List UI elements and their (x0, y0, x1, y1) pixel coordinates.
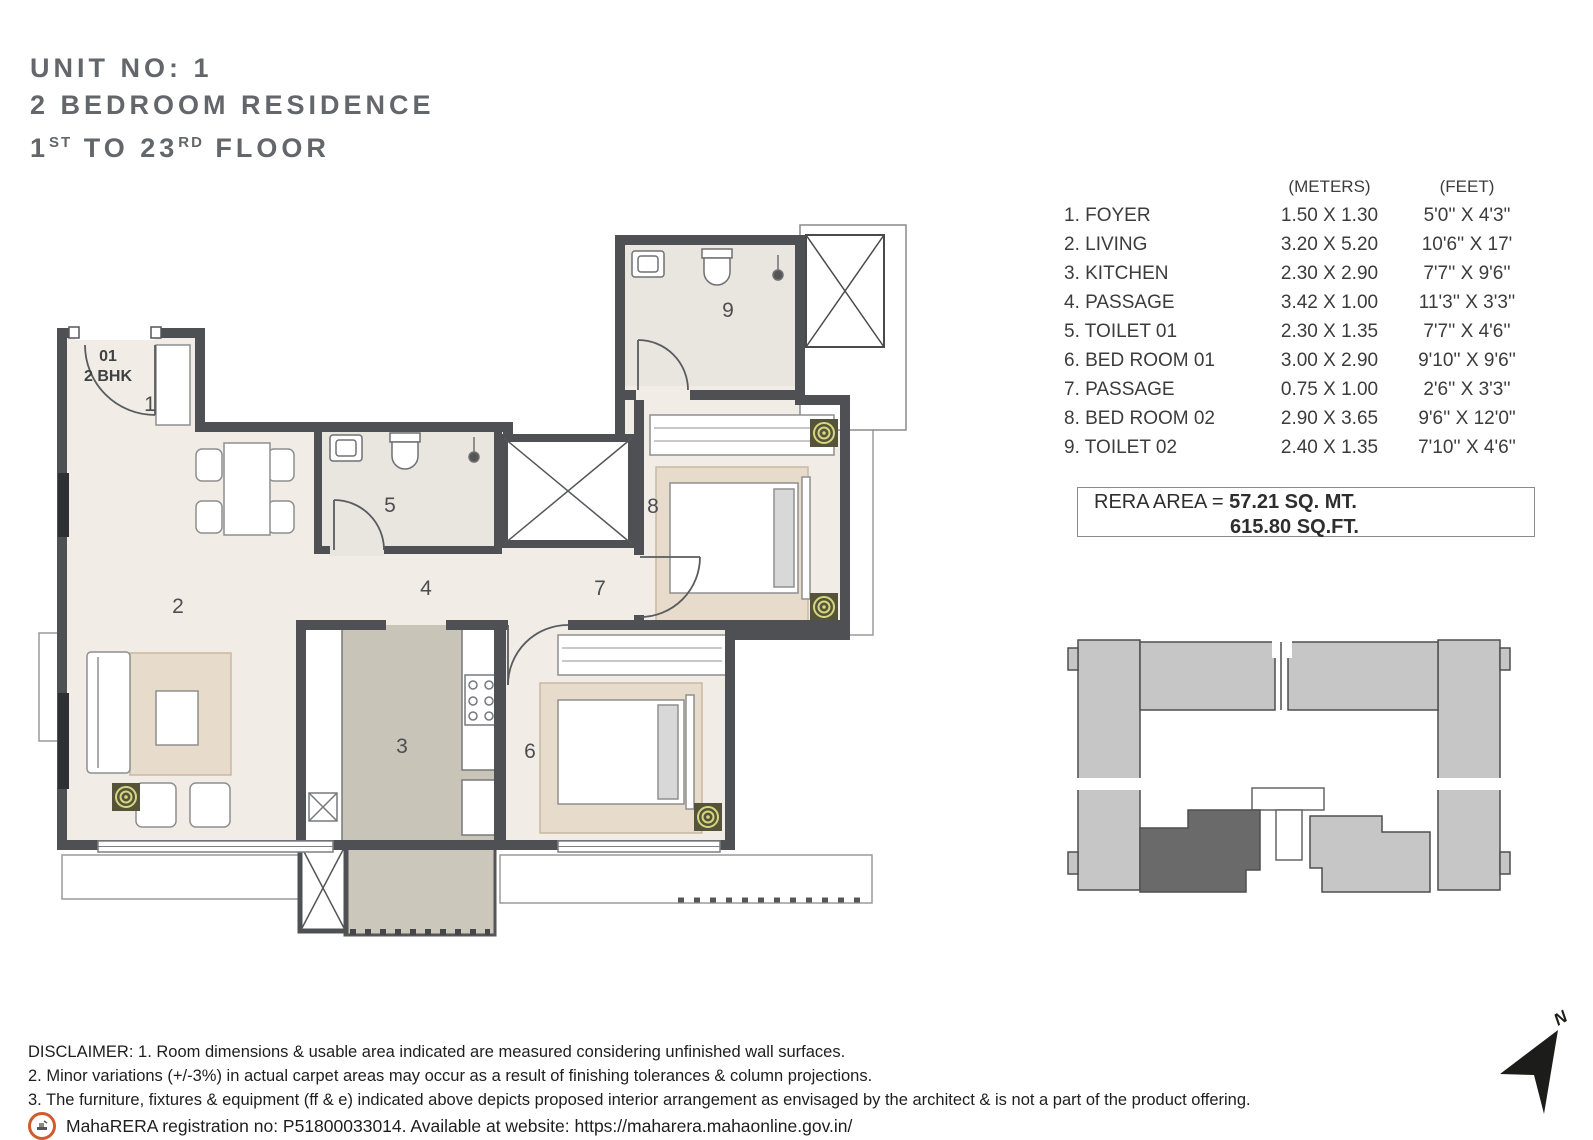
table-row: 9. TOILET 022.40 X 1.357'10'' X 4'6'' (1062, 433, 1532, 462)
entry-opening (75, 326, 155, 340)
keyplan-core-stem (1276, 810, 1302, 860)
room-label-toilet02: 9 (722, 299, 734, 322)
armchair (190, 783, 230, 827)
keyplan-highlighted-unit (1140, 810, 1260, 892)
wc-bowl (704, 258, 730, 285)
headboard (686, 695, 694, 809)
room-label-toilet01: 5 (384, 494, 396, 517)
burner (469, 681, 477, 689)
door-frame (151, 327, 161, 338)
shower-head (773, 270, 783, 280)
burner (485, 712, 493, 720)
wall (494, 620, 506, 845)
armchair (136, 783, 176, 827)
table-row: 7. PASSAGE0.75 X 1.002'6'' X 3'3'' (1062, 375, 1532, 404)
disclaimer-block: DISCLAIMER: 1. Room dimensions & usable … (28, 1040, 1428, 1112)
pillow (658, 705, 678, 799)
wardrobe-bedroom01 (558, 635, 726, 675)
table-row: 5. TOILET 012.30 X 1.357'7'' X 4'6'' (1062, 317, 1532, 346)
sofa (87, 652, 130, 773)
north-arrow-label: N (1551, 1008, 1572, 1029)
residence-type: 2 BEDROOM RESIDENCE (30, 87, 435, 124)
table-row: 1. FOYER1.50 X 1.305'0'' X 4'3" (1062, 201, 1532, 230)
maharera-registration-text: MahaRERA registration no: P51800033014. … (66, 1116, 852, 1137)
unit-number: UNIT NO: 1 (30, 50, 435, 87)
wall (568, 620, 845, 630)
rera-area-sqmt: 57.21 SQ. MT. (1229, 491, 1357, 513)
burner (485, 697, 493, 705)
keyplan-left-notch (1076, 778, 1142, 790)
door-frame (69, 327, 79, 338)
dimensions-table: (METERS) (FEET) 1. FOYER1.50 X 1.305'0''… (1062, 172, 1532, 462)
wc-tank (702, 249, 732, 258)
keyplan-top-left-block (1140, 642, 1275, 710)
wardrobe-bedroom02 (650, 415, 834, 455)
north-arrow: N (1492, 1008, 1582, 1123)
wall (296, 620, 306, 845)
disclaimer-line-2: 2. Minor variations (+/-3%) in actual ca… (28, 1064, 1428, 1088)
dry-balcony-floor (345, 845, 495, 935)
ledge-bottom-bedroom (500, 855, 872, 903)
col-header-feet: (FEET) (1402, 177, 1532, 197)
wall (296, 620, 386, 630)
unit-tag-line2: 2 BHK (84, 368, 132, 385)
north-arrow-shape (1500, 1030, 1558, 1114)
keyplan-core-bar (1252, 788, 1324, 810)
toilet01-opening (330, 544, 384, 556)
room-label-foyer: 1 (144, 393, 156, 416)
headboard (802, 477, 810, 599)
dining-table (224, 443, 270, 535)
disclaimer-line-1: DISCLAIMER: 1. Room dimensions & usable … (28, 1040, 1428, 1064)
wall (634, 400, 644, 555)
keyplan-bottom-right-cluster (1310, 816, 1430, 892)
rera-area-label: RERA AREA = (1094, 491, 1229, 513)
floor-plan-drawing: 1 2 3 4 5 6 7 8 9 01 2 BHK (38, 205, 918, 950)
disclaimer-line-3: 3. The furniture, fixtures & equipment (… (28, 1088, 1428, 1112)
burner (485, 681, 493, 689)
wc-bowl (392, 442, 418, 469)
wc-tank (390, 433, 420, 442)
keyplan-top-notch (1272, 636, 1292, 658)
table-row: 3. KITCHEN2.30 X 2.907'7'' X 9'6'' (1062, 259, 1532, 288)
room-label-bedroom01: 6 (524, 740, 536, 763)
coffee-table (156, 691, 198, 745)
floor-plan: 1 2 3 4 5 6 7 8 9 01 2 BHK (38, 205, 918, 950)
col-header-meters: (METERS) (1257, 177, 1402, 197)
dining-chair (268, 449, 294, 481)
dining-chair (196, 449, 222, 481)
keyplan-top-right-block (1288, 642, 1438, 710)
table-row: 2. LIVING3.20 X 5.2010'6'' X 17' (1062, 230, 1532, 259)
room-label-passage2: 7 (594, 577, 606, 600)
dining-chair (268, 501, 294, 533)
rera-area-box: RERA AREA = 57.21 SQ. MT. 615.80 SQ.FT. (1077, 487, 1535, 537)
wall (620, 390, 636, 400)
room-label-living: 2 (172, 595, 184, 618)
burner (469, 712, 477, 720)
dining-chair (196, 501, 222, 533)
burner (469, 697, 477, 705)
title-block: UNIT NO: 1 2 BEDROOM RESIDENCE 1ST TO 23… (30, 50, 435, 167)
keyplan-left-wing (1078, 640, 1140, 890)
keyplan-right-wing (1438, 640, 1500, 890)
key-plan-drawing (1060, 630, 1515, 905)
floor-range: 1ST TO 23RD FLOOR (30, 124, 435, 167)
foyer-niche (156, 345, 190, 425)
rera-area-sqft: 615.80 SQ.FT. (1230, 515, 1534, 540)
table-row: 4. PASSAGE3.42 X 1.0011'3'' X 3'3'' (1062, 288, 1532, 317)
room-label-bedroom02: 8 (647, 495, 659, 518)
unit-tag-line1: 01 (99, 348, 117, 365)
room-label-kitchen: 3 (396, 735, 408, 758)
room-label-passage: 4 (420, 577, 432, 600)
table-row: 8. BED ROOM 022.90 X 3.659'6'' X 12'0" (1062, 404, 1532, 433)
shower-head (469, 452, 479, 462)
keyplan-right-notch (1434, 778, 1502, 790)
maharera-registration: MahaRERA registration no: P51800033014. … (28, 1112, 852, 1140)
key-plan (1060, 630, 1515, 905)
pillow (774, 489, 794, 587)
table-row: 6. BED ROOM 013.00 X 2.909'10'' X 9'6'' (1062, 346, 1532, 375)
table-header: (METERS) (FEET) (1062, 172, 1532, 201)
wall (690, 390, 800, 400)
maharera-logo-icon (28, 1112, 56, 1140)
